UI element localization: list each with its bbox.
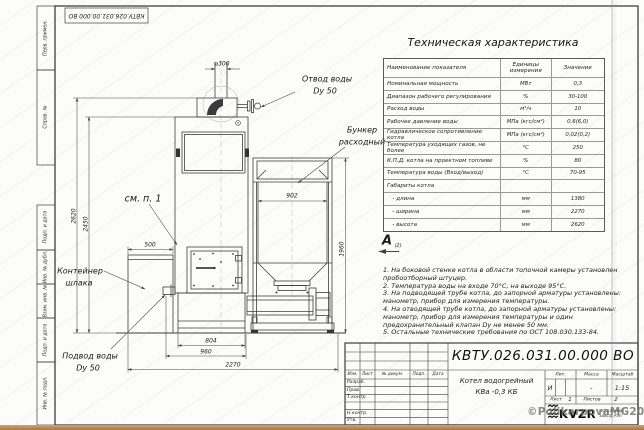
cell-units: °С: [501, 142, 552, 154]
label-water-inlet-2: Dy 50: [76, 364, 100, 373]
cell-name: Диапазон рабочего регулирования: [384, 91, 501, 103]
desk-edge: [0, 425, 644, 430]
mass-header: Масса: [584, 372, 599, 377]
title-block-column-headers: Изм. Лист № докум. Подп. Дата: [345, 370, 448, 379]
dim-total-height: 2620: [71, 208, 78, 223]
cell-units: мм: [501, 206, 552, 218]
sheets-label: Листов: [583, 398, 600, 403]
cell-value: 250: [552, 142, 605, 154]
cell-name: Температура уходящих газов, не более: [384, 142, 501, 154]
mass-value: -: [590, 384, 592, 392]
col-header-units: Единицы измерения: [501, 59, 552, 77]
row-label: Разраб.: [346, 379, 406, 387]
label-water-outlet-2: Dy 50: [313, 87, 337, 96]
table-row: Габариты котла: [384, 180, 604, 193]
cell-value: 0,3: [552, 78, 605, 90]
drawing-sheet: КВТУ.026.031.00.000 ВО Перв. примен. Спр…: [0, 0, 644, 430]
label-slag-container-2: шлака: [65, 279, 92, 288]
product-name-line1: Котел водогрейный: [448, 376, 545, 387]
dim-container-width: 500: [144, 242, 155, 249]
table-row: Гидравлическое сопротивление котла МПа (…: [384, 129, 604, 142]
row-label: Н.контр.: [346, 410, 406, 418]
dim-total-length: 2270: [225, 362, 240, 369]
cell-name: - ширина: [384, 206, 501, 218]
cell-value: 0,6(6,0): [552, 116, 605, 128]
col-dokum: № докум.: [375, 370, 410, 379]
product-name-line2: КВа -0,3 КБ: [448, 387, 545, 398]
label-bunker-2: расходный: [339, 138, 385, 147]
cell-name: - длина: [384, 193, 501, 205]
cell-name: Расход воды: [384, 104, 501, 116]
table-row: - высота мм 2620: [384, 219, 604, 231]
label-water-outlet-1: Отвод воды: [302, 75, 352, 84]
rotated-doc-number-stamp: КВТУ.026.031.00.000 ВО: [65, 8, 148, 23]
cell-value: 10: [552, 104, 605, 116]
cell-value: 70-95: [552, 168, 605, 180]
table-row: Диапазон рабочего регулирования % 30-100: [384, 91, 604, 104]
margin-label-podp-data-1: Подп. и дата: [44, 211, 49, 244]
chimney-elbow: [207, 99, 223, 115]
col-header-value: Значение: [552, 59, 605, 77]
table-row: Температура уходящих газов, не более °С …: [384, 142, 604, 155]
cell-value: 0,02(0,2): [552, 129, 605, 141]
table-row: - ширина мм 2270: [384, 206, 604, 219]
cell-name: Рабочее давление воды: [384, 116, 501, 128]
label-slag-container-1: Контейнер: [57, 267, 103, 276]
note-item: 1. На боковой стенке котла в области топ…: [383, 267, 631, 283]
col-data: Дата: [428, 370, 448, 379]
cell-value: 2620: [552, 219, 605, 231]
cell-units: [501, 180, 552, 192]
margin-label-vzam-inv: Взам. инв. №: [44, 285, 49, 318]
lit-value: И: [548, 384, 553, 392]
col-podp: Подп.: [410, 370, 428, 379]
table-row: Расход воды м³/ч 10: [384, 104, 604, 117]
dimension-lines: [73, 62, 399, 373]
col-izm: Изм.: [345, 370, 360, 379]
product-name: Котел водогрейный КВа -0,3 КБ: [448, 376, 545, 398]
dim-bunker-width: 902: [286, 193, 297, 200]
note-item: 3. На подводящей трубе котла, до запорно…: [383, 290, 631, 306]
tech-table: Наименование показателя Единицы измерени…: [383, 58, 605, 232]
margin-label-perv-primen: Перв. примен.: [44, 20, 49, 56]
label-bunker-1: Бункер: [347, 126, 377, 135]
tech-table-rows: Номинальная мощность МВт 0,3 Диапазон ра…: [384, 78, 604, 231]
row-label: Т.контр.: [346, 394, 406, 402]
note-item: 4. На отводящей трубе котла, до запорной…: [383, 306, 631, 329]
cell-units: мм: [501, 219, 552, 231]
firebox-door: [187, 247, 242, 293]
cell-units: %: [501, 155, 552, 167]
margin-label-inv-podl: Инв. № подл.: [44, 376, 49, 409]
sheets-value: 2: [614, 397, 618, 403]
view-a-ref: (2): [394, 243, 401, 249]
label-water-inlet-1: Подвод воды: [62, 352, 118, 361]
cell-value: 30-100: [552, 91, 605, 103]
dim-boiler-width: 960: [200, 349, 211, 356]
dim-bunker-height: 1960: [339, 241, 346, 256]
cell-units: МВт: [501, 78, 552, 90]
water-outlet-fitting: [237, 100, 261, 113]
cell-value: 80: [552, 155, 605, 167]
dim-boiler-base: 804: [205, 338, 216, 345]
scale-header: Масштаб: [612, 372, 634, 377]
table-row: К.П.Д. котла на проектном топливе % 80: [384, 155, 604, 168]
fuel-bunker: [247, 158, 334, 333]
table-row: Номинальная мощность МВт 0,3: [384, 78, 604, 91]
tech-table-header: Наименование показателя Единицы измерени…: [384, 59, 604, 78]
boiler-body: [175, 117, 248, 293]
cell-name: - высота: [384, 219, 501, 231]
margin-label-inv-dubl: Инв. № дубл.: [44, 251, 49, 284]
sheet-value: 1: [568, 397, 572, 403]
col-list: Лист: [360, 370, 375, 379]
row-label: Пров.: [346, 387, 406, 395]
cell-units: м³/ч: [501, 104, 552, 116]
margin-label-sprav-no: Справ. №: [44, 105, 49, 128]
label-see-note-1: см. п. 1: [125, 194, 162, 205]
doc-number: КВТУ.026.031.00.000 ВО: [448, 343, 638, 370]
cell-value: 2270: [552, 206, 605, 218]
cell-name: Гидравлическое сопротивление котла: [384, 129, 501, 141]
cell-units: мм: [501, 193, 552, 205]
cell-name: Температура воды (Вход/выход): [384, 168, 501, 180]
tech-table-title: Техническая характеристика: [383, 36, 603, 49]
table-row: Рабочее давление воды МПа (кгс/см²) 0,6(…: [384, 116, 604, 129]
col-header-name: Наименование показателя: [384, 59, 501, 77]
table-row: - длина мм 1380: [384, 193, 604, 206]
cell-name: Номинальная мощность: [384, 78, 501, 90]
dim-boiler-height: 2450: [83, 216, 90, 231]
cell-value: [552, 180, 605, 192]
cell-units: %: [501, 91, 552, 103]
cell-name: Габариты котла: [384, 180, 501, 192]
table-row: Температура воды (Вход/выход) °С 70-95: [384, 168, 604, 181]
photo-watermark: ©PolikarpovaMG2021: [527, 406, 644, 418]
scale-value: 1:15: [615, 384, 630, 392]
cell-name: К.П.Д. котла на проектном топливе: [384, 155, 501, 167]
lit-header: Лит.: [555, 372, 566, 377]
cell-units: МПа (кгс/см²): [501, 129, 552, 141]
cell-units: МПа (кгс/см²): [501, 116, 552, 128]
dim-chimney-dia: ⌀300: [214, 61, 229, 68]
margin-label-podp-data-2: Подп. и дата: [44, 324, 49, 357]
notes-list: 1. На боковой стенке котла в области топ…: [383, 267, 631, 337]
row-label: [346, 402, 406, 410]
cell-value: 1380: [552, 193, 605, 205]
cell-units: °С: [501, 168, 552, 180]
sheet-label: Лист: [550, 398, 562, 403]
note-item: 5. Остальные технические требования по О…: [383, 329, 631, 337]
title-block-row-labels: Разраб. Пров. Т.контр. Н.контр. Утв.: [346, 379, 406, 425]
view-a-letter: А: [382, 234, 392, 249]
row-label: Утв.: [346, 417, 406, 425]
